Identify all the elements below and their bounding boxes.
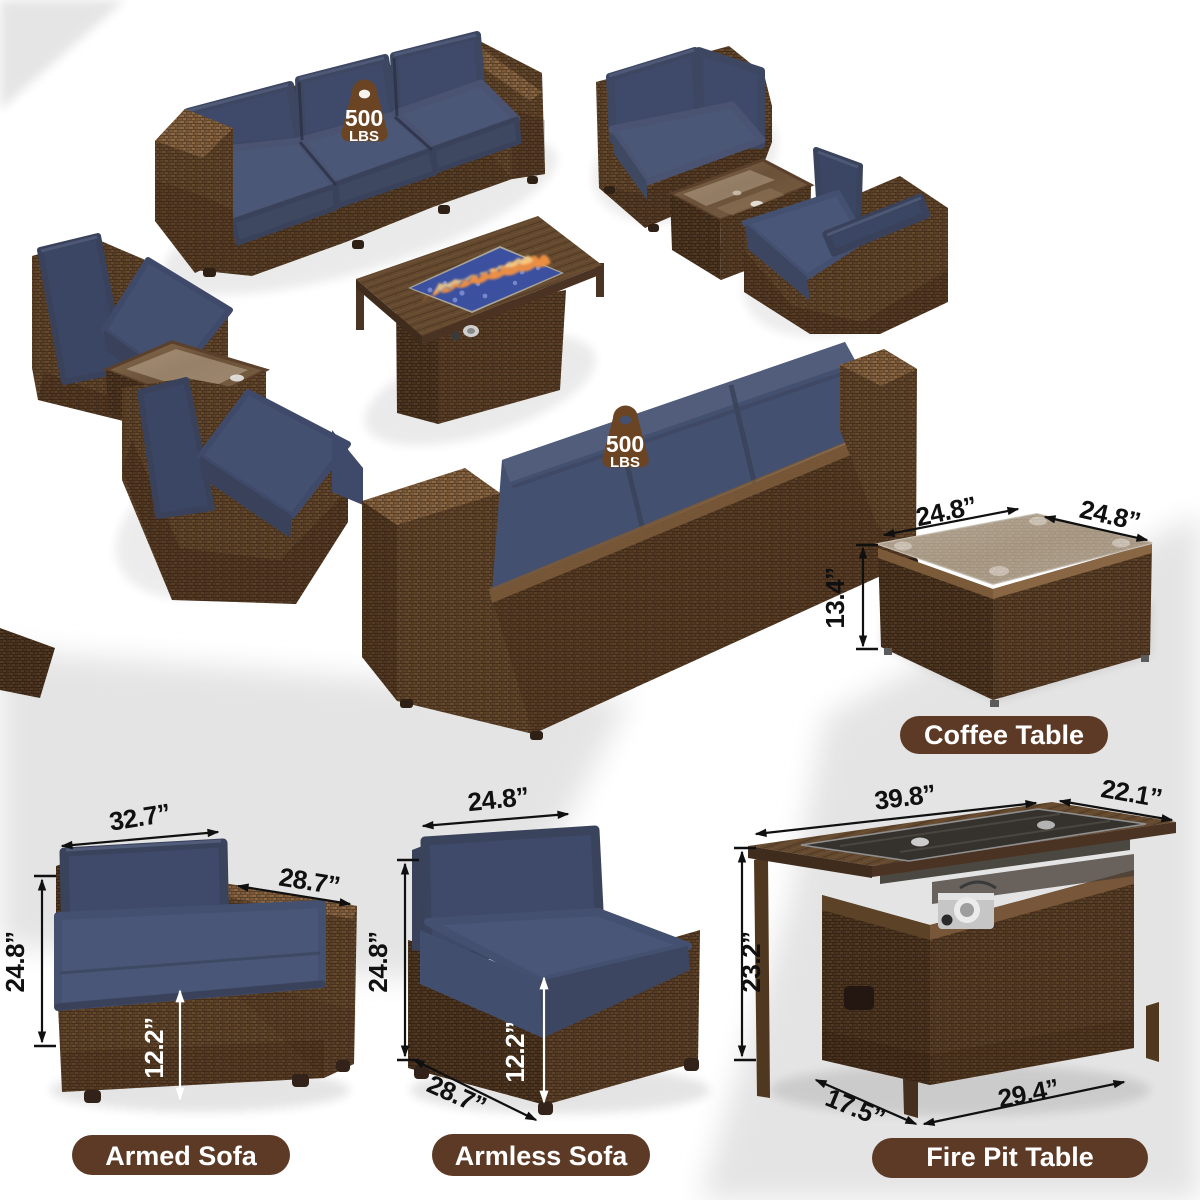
svg-text:23.2”: 23.2” (736, 931, 766, 992)
svg-text:13.4”: 13.4” (820, 567, 850, 628)
svg-text:24.8”: 24.8” (363, 931, 393, 992)
svg-text:12.2”: 12.2” (500, 1021, 530, 1082)
svg-text:Fire Pit Table: Fire Pit Table (926, 1142, 1094, 1172)
svg-text:Armless Sofa: Armless Sofa (455, 1141, 629, 1171)
svg-text:Armed Sofa: Armed Sofa (105, 1141, 258, 1171)
svg-text:LBS: LBS (349, 128, 379, 145)
svg-text:LBS: LBS (610, 454, 640, 471)
svg-text:12.2”: 12.2” (139, 1017, 169, 1078)
svg-text:Coffee Table: Coffee Table (924, 720, 1084, 750)
svg-text:24.8”: 24.8” (0, 931, 30, 992)
svg-text:24.8”: 24.8” (466, 781, 530, 817)
